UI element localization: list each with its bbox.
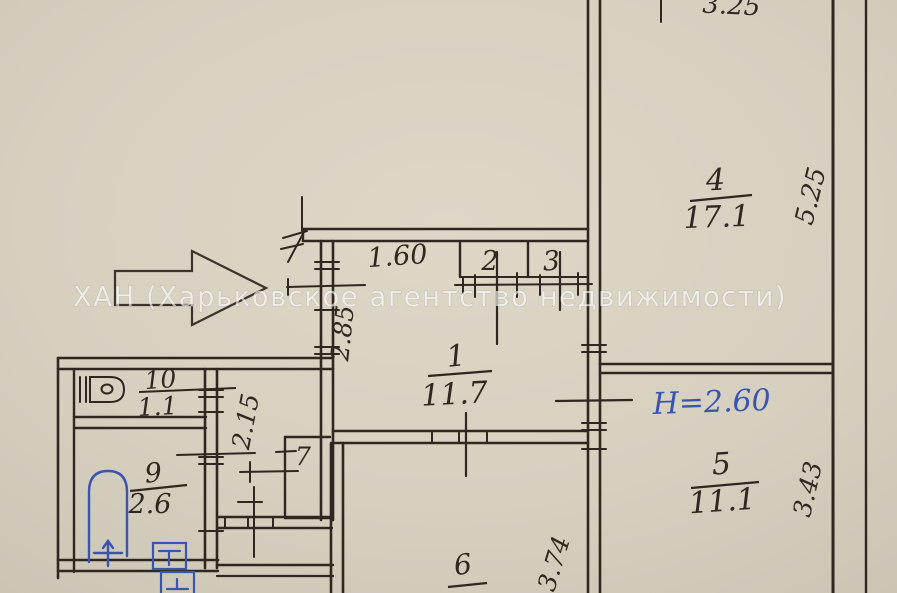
room-5-area: 11.1	[688, 482, 757, 522]
floorplan-svg: 4 17.1 1 11.7 2 3 5 11.1 6 7 9 2.6 10 1.…	[0, 0, 897, 593]
room-3-number: 3	[542, 245, 561, 277]
dimension-hall-top: 1.60	[366, 239, 428, 274]
room-10-area: 1.1	[137, 391, 178, 422]
room-1-number: 1	[445, 338, 468, 375]
room-9-number: 9	[143, 457, 163, 489]
agency-watermark: ХАН (Харьковское агентство недвижимости)	[73, 281, 787, 313]
room-5-number: 5	[711, 446, 732, 482]
room-9-area: 2.6	[128, 489, 172, 520]
room-4-area: 17.1	[683, 199, 751, 236]
ceiling-height-note: H=2.60	[651, 383, 771, 422]
floorplan-photo: 4 17.1 1 11.7 2 3 5 11.1 6 7 9 2.6 10 1.…	[0, 0, 897, 593]
room-4-number: 4	[704, 163, 726, 199]
dimension-top-width: 3.25	[702, 0, 761, 23]
room-1-area: 11.7	[420, 375, 489, 413]
room-2-number: 2	[480, 246, 498, 277]
room-7-number: 7	[295, 442, 311, 471]
